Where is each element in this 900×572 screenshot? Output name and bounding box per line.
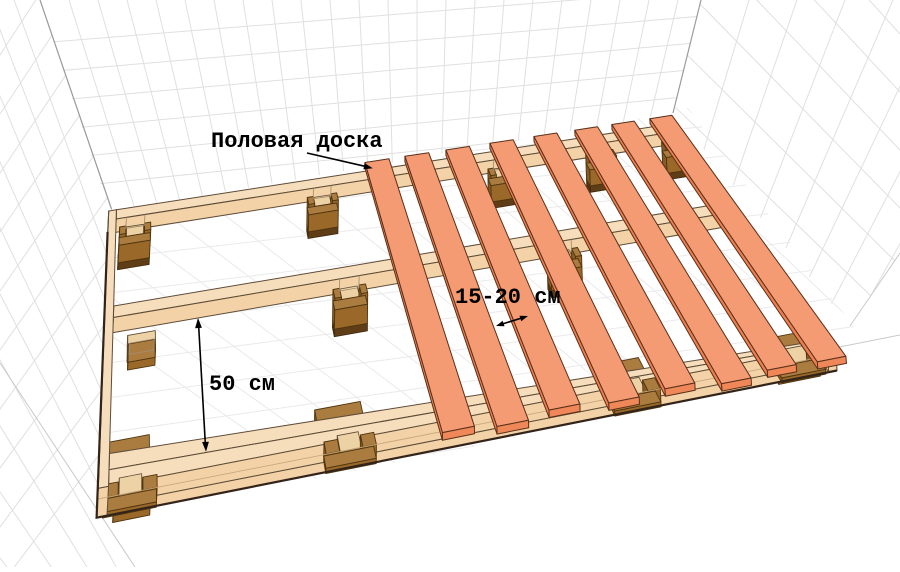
svg-text:50 см: 50 см — [209, 372, 275, 397]
svg-text:Половая доска: Половая доска — [211, 129, 383, 154]
svg-text:15-20 см: 15-20 см — [455, 285, 561, 310]
